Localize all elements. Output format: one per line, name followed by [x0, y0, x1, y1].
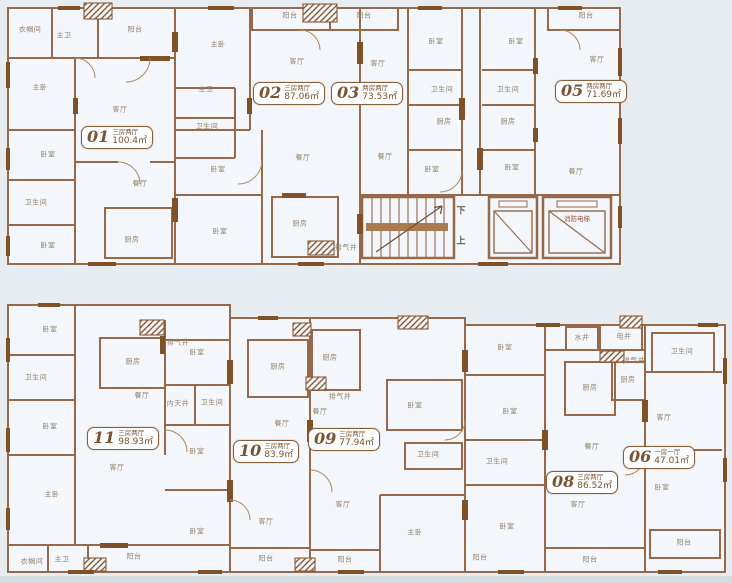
room-label: 餐厅	[133, 181, 148, 188]
room-label: 客厅	[590, 57, 605, 64]
room-label: 餐厅	[275, 421, 290, 428]
room-label: 餐厅	[378, 154, 393, 161]
unit-badge-08: 08三房两厅86.52㎡	[546, 471, 618, 494]
room-label: 主卧	[408, 530, 423, 537]
room-label: 衣帽间	[21, 559, 44, 566]
room-label: 卧室	[43, 424, 58, 431]
unit-badge-06: 06一房一厅47.01㎡	[623, 446, 695, 469]
unit-area: 98.93㎡	[118, 438, 153, 447]
room-label: 阳台	[259, 556, 274, 563]
unit-area: 100.4㎡	[112, 137, 147, 146]
room-label: 餐厅	[569, 169, 584, 176]
unit-type: 三房两厅	[264, 443, 293, 450]
room-label: 阳台	[283, 13, 298, 20]
room-label: 阳台	[338, 557, 353, 564]
room-label: 卧室	[190, 350, 205, 357]
room-label: 餐厅	[313, 409, 328, 416]
room-label: 卧室	[425, 167, 440, 174]
room-label: 厨房	[621, 377, 636, 384]
room-label: 卧室	[41, 243, 56, 250]
unit-badge-03: 03两房两厅73.53㎡	[331, 82, 403, 105]
unit-number: 05	[561, 83, 583, 99]
unit-info: 三房两厅98.93㎡	[118, 430, 153, 447]
floor-plan: 衣帽间主卫阳台主卧客厅卧室卫生间餐厅卧室厨房主卧主卫卫生间卧室卧室阳台客厅餐厅厨…	[0, 0, 732, 583]
room-label: 卫生间	[486, 459, 509, 466]
unit-info: 两房两厅71.69㎡	[586, 83, 621, 100]
unit-number: 08	[552, 474, 574, 490]
room-label: 厨房	[437, 119, 452, 126]
room-label: 阳台	[579, 13, 594, 20]
unit-type: 两房两厅	[362, 85, 397, 92]
room-label: 客厅	[657, 415, 672, 422]
unit-type: 一房一厅	[654, 449, 689, 456]
room-label: 主卧	[33, 85, 48, 92]
unit-area: 87.06㎡	[284, 93, 319, 102]
room-label: 客厅	[336, 502, 351, 509]
room-label: 卫生间	[196, 124, 219, 131]
room-label: 阳台	[357, 13, 372, 20]
room-label: 排气井	[329, 394, 352, 401]
unit-badge-02: 02三房两厅87.06㎡	[253, 82, 325, 105]
unit-badge-10: 10三房两厅83.9㎡	[233, 440, 299, 463]
room-label: 厨房	[501, 119, 516, 126]
unit-number: 10	[239, 443, 261, 459]
ground-shadow-strip	[0, 576, 732, 583]
room-label: 卧室	[211, 167, 226, 174]
unit-type: 两房两厅	[586, 83, 621, 90]
unit-number: 03	[337, 85, 359, 101]
unit-info: 三房两厅77.94㎡	[339, 431, 374, 448]
room-label: 主卫	[199, 87, 214, 94]
unit-number: 09	[314, 431, 336, 447]
room-label: 卫生间	[497, 87, 520, 94]
room-label: 排气井	[335, 245, 358, 252]
room-label: 卧室	[509, 39, 524, 46]
unit-badge-05: 05两房两厅71.69㎡	[555, 80, 627, 103]
room-label: 阳台	[127, 554, 142, 561]
room-label: 阳台	[677, 540, 692, 547]
room-label: 卧室	[190, 449, 205, 456]
room-label: 厨房	[126, 359, 141, 366]
room-label: 卧室	[429, 39, 444, 46]
room-label: 卧室	[503, 409, 518, 416]
unit-type: 三房两厅	[118, 430, 153, 437]
room-label: 卫生间	[417, 452, 440, 459]
room-label: 卧室	[500, 524, 515, 531]
room-label: 厨房	[323, 355, 338, 362]
room-label: 主卧	[45, 492, 60, 499]
room-label: 客厅	[290, 59, 305, 66]
room-label: 卫生间	[431, 87, 454, 94]
room-label: 客厅	[259, 519, 274, 526]
unit-number: 06	[629, 449, 651, 465]
room-label: 主卫	[55, 557, 70, 564]
room-label: 客厅	[113, 107, 128, 114]
unit-info: 两房两厅73.53㎡	[362, 85, 397, 102]
room-label: 厨房	[583, 385, 598, 392]
room-label: 衣帽间	[19, 27, 42, 34]
room-label: 阳台	[128, 27, 143, 34]
room-label: 主卫	[57, 33, 72, 40]
unit-area: 83.9㎡	[264, 451, 293, 460]
room-label: 客厅	[371, 61, 386, 68]
room-label: 卧室	[190, 529, 205, 536]
unit-area: 77.94㎡	[339, 439, 374, 448]
unit-area: 47.01㎡	[654, 457, 689, 466]
room-label: 餐厅	[296, 155, 311, 162]
unit-area: 73.53㎡	[362, 93, 397, 102]
unit-type: 三房两厅	[284, 85, 319, 92]
room-label: 排气井	[623, 358, 646, 365]
unit-area: 71.69㎡	[586, 91, 621, 100]
stairs-up-label: 上	[456, 238, 465, 247]
room-label: 卧室	[408, 403, 423, 410]
unit-type: 三房两厅	[112, 129, 147, 136]
unit-badge-11: 11三房两厅98.93㎡	[87, 427, 159, 450]
room-label: 厨房	[271, 364, 286, 371]
room-label: 卧室	[41, 152, 56, 159]
room-label: 卫生间	[201, 400, 224, 407]
room-label: 排气井	[167, 340, 190, 347]
room-label: 电井	[617, 334, 632, 341]
room-label: 阳台	[583, 557, 598, 564]
room-label: 主卧	[211, 42, 226, 49]
unit-info: 三房两厅86.52㎡	[577, 474, 612, 491]
fire-elevator-label: 消防电梯	[564, 216, 590, 223]
room-label: 餐厅	[585, 444, 600, 451]
room-label: 卧室	[43, 327, 58, 334]
unit-area: 86.52㎡	[577, 482, 612, 491]
stairs-down-label: 下	[456, 208, 465, 217]
room-label: 卫生间	[25, 375, 48, 382]
unit-badge-09: 09三房两厅77.94㎡	[308, 428, 380, 451]
room-label: 餐厅	[135, 393, 150, 400]
unit-number: 02	[259, 85, 281, 101]
room-label: 水井	[575, 335, 590, 342]
room-label: 厨房	[293, 221, 308, 228]
room-label: 厨房	[125, 237, 140, 244]
room-label: 客厅	[110, 465, 125, 472]
room-label: 卫生间	[671, 349, 694, 356]
room-label: 内天井	[167, 401, 190, 408]
room-label: 卫生间	[25, 200, 48, 207]
room-label: 客厅	[571, 502, 586, 509]
room-label: 阳台	[473, 555, 488, 562]
unit-badge-01: 01三房两厅100.4㎡	[81, 126, 153, 149]
unit-info: 一房一厅47.01㎡	[654, 449, 689, 466]
room-label: 卧室	[498, 345, 513, 352]
unit-info: 三房两厅87.06㎡	[284, 85, 319, 102]
room-label: 卧室	[505, 165, 520, 172]
unit-info: 三房两厅83.9㎡	[264, 443, 293, 460]
unit-type: 三房两厅	[339, 431, 374, 438]
unit-number: 01	[87, 129, 109, 145]
room-label: 卧室	[655, 485, 670, 492]
unit-number: 11	[93, 430, 115, 446]
unit-info: 三房两厅100.4㎡	[112, 129, 147, 146]
room-label: 卧室	[213, 229, 228, 236]
unit-type: 三房两厅	[577, 474, 612, 481]
